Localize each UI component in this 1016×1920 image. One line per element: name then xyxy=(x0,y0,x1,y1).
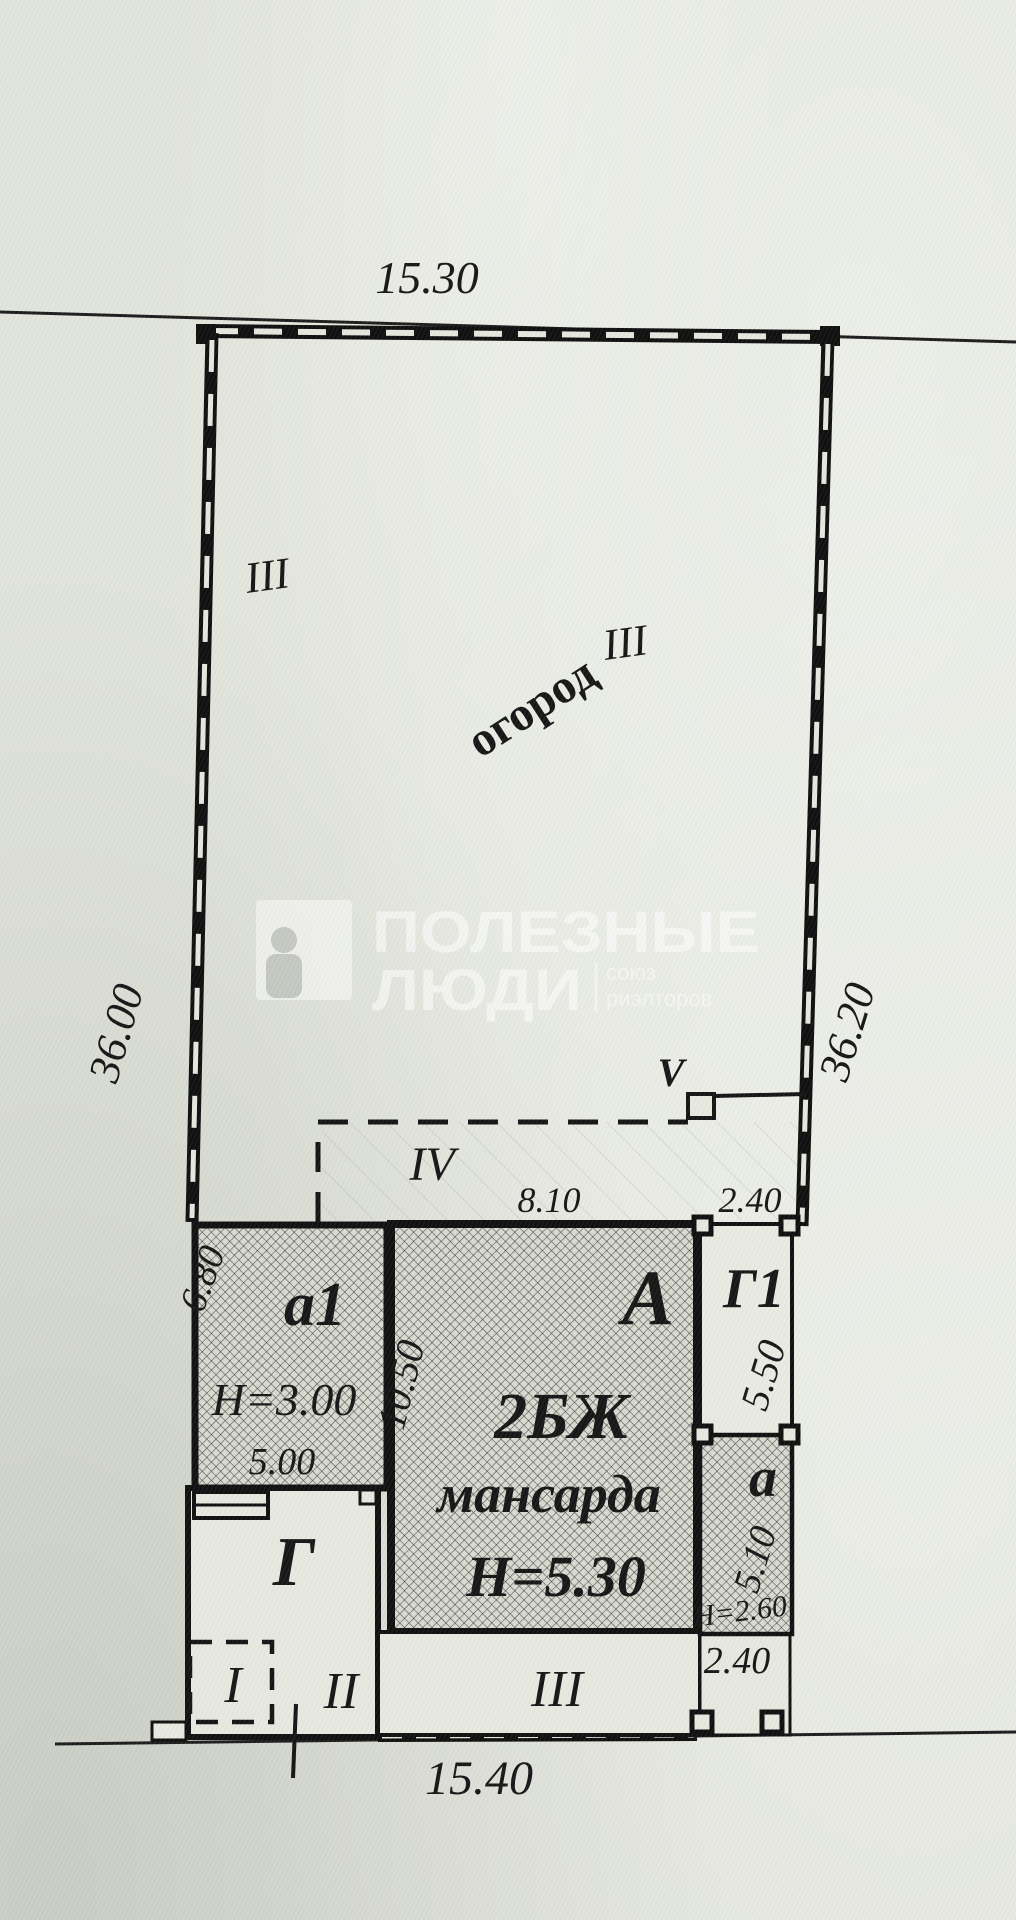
scanned-site-plan-page: ПОЛЕЗНЫЕ ЛЮДИ союз риэлторов 15.30 III I… xyxy=(0,0,1016,1920)
boundary-end-post xyxy=(152,1722,186,1740)
boundary-mark-left: III xyxy=(241,548,295,603)
dimension-porch-width: 2.40 xyxy=(704,1640,771,1682)
watermark-tagline-line1: союз xyxy=(606,960,656,985)
boundary-fence-left xyxy=(192,333,212,1222)
building-G-notch xyxy=(360,1490,376,1504)
boundary-fence-top xyxy=(196,324,840,346)
building-a-label: а xyxy=(749,1447,777,1509)
dimension-bottom: 15.40 xyxy=(425,1752,533,1805)
point-v-label: V xyxy=(658,1050,688,1095)
garden-label: огород xyxy=(457,646,605,768)
structure-i-label: I xyxy=(223,1657,244,1714)
building-G1-label: Г1 xyxy=(722,1258,785,1320)
building-G-label: Г xyxy=(272,1524,316,1601)
point-v-structure xyxy=(688,1094,714,1118)
watermark-brand-line1: ПОЛЕЗНЫЕ xyxy=(372,900,760,965)
watermark-tagline-line2: риэлторов xyxy=(606,986,712,1011)
building-A-height: Н=5.30 xyxy=(465,1544,646,1609)
building-A-label: А xyxy=(617,1254,674,1341)
building-A-type: 2БЖ xyxy=(493,1380,632,1453)
boundary-mark-bottom: III xyxy=(530,1661,586,1718)
boundary-mark-right: III xyxy=(599,615,653,670)
building-a1-label: а1 xyxy=(284,1271,346,1339)
region-iv-label: IV xyxy=(408,1138,459,1191)
dimension-G1-top-width: 2.40 xyxy=(719,1180,782,1220)
building-a1-height: Н=3.00 xyxy=(211,1374,357,1425)
building-A-attic: мансарда xyxy=(435,1464,661,1524)
site-plan-drawing: ПОЛЕЗНЫЕ ЛЮДИ союз риэлторов 15.30 III I… xyxy=(0,0,1016,1920)
watermark: ПОЛЕЗНЫЕ ЛЮДИ союз риэлторов xyxy=(256,900,760,1023)
dimension-right: 36.20 xyxy=(809,977,885,1087)
dimension-a1-width: 5.00 xyxy=(249,1441,316,1483)
region-ii-label: II xyxy=(323,1663,361,1720)
watermark-brand-line2: ЛЮДИ xyxy=(372,958,582,1023)
dimension-left: 36.00 xyxy=(79,979,154,1089)
dimension-A-top-width: 8.10 xyxy=(518,1180,581,1220)
point-v-tie-line xyxy=(714,1094,806,1096)
dimension-top: 15.30 xyxy=(375,252,479,303)
